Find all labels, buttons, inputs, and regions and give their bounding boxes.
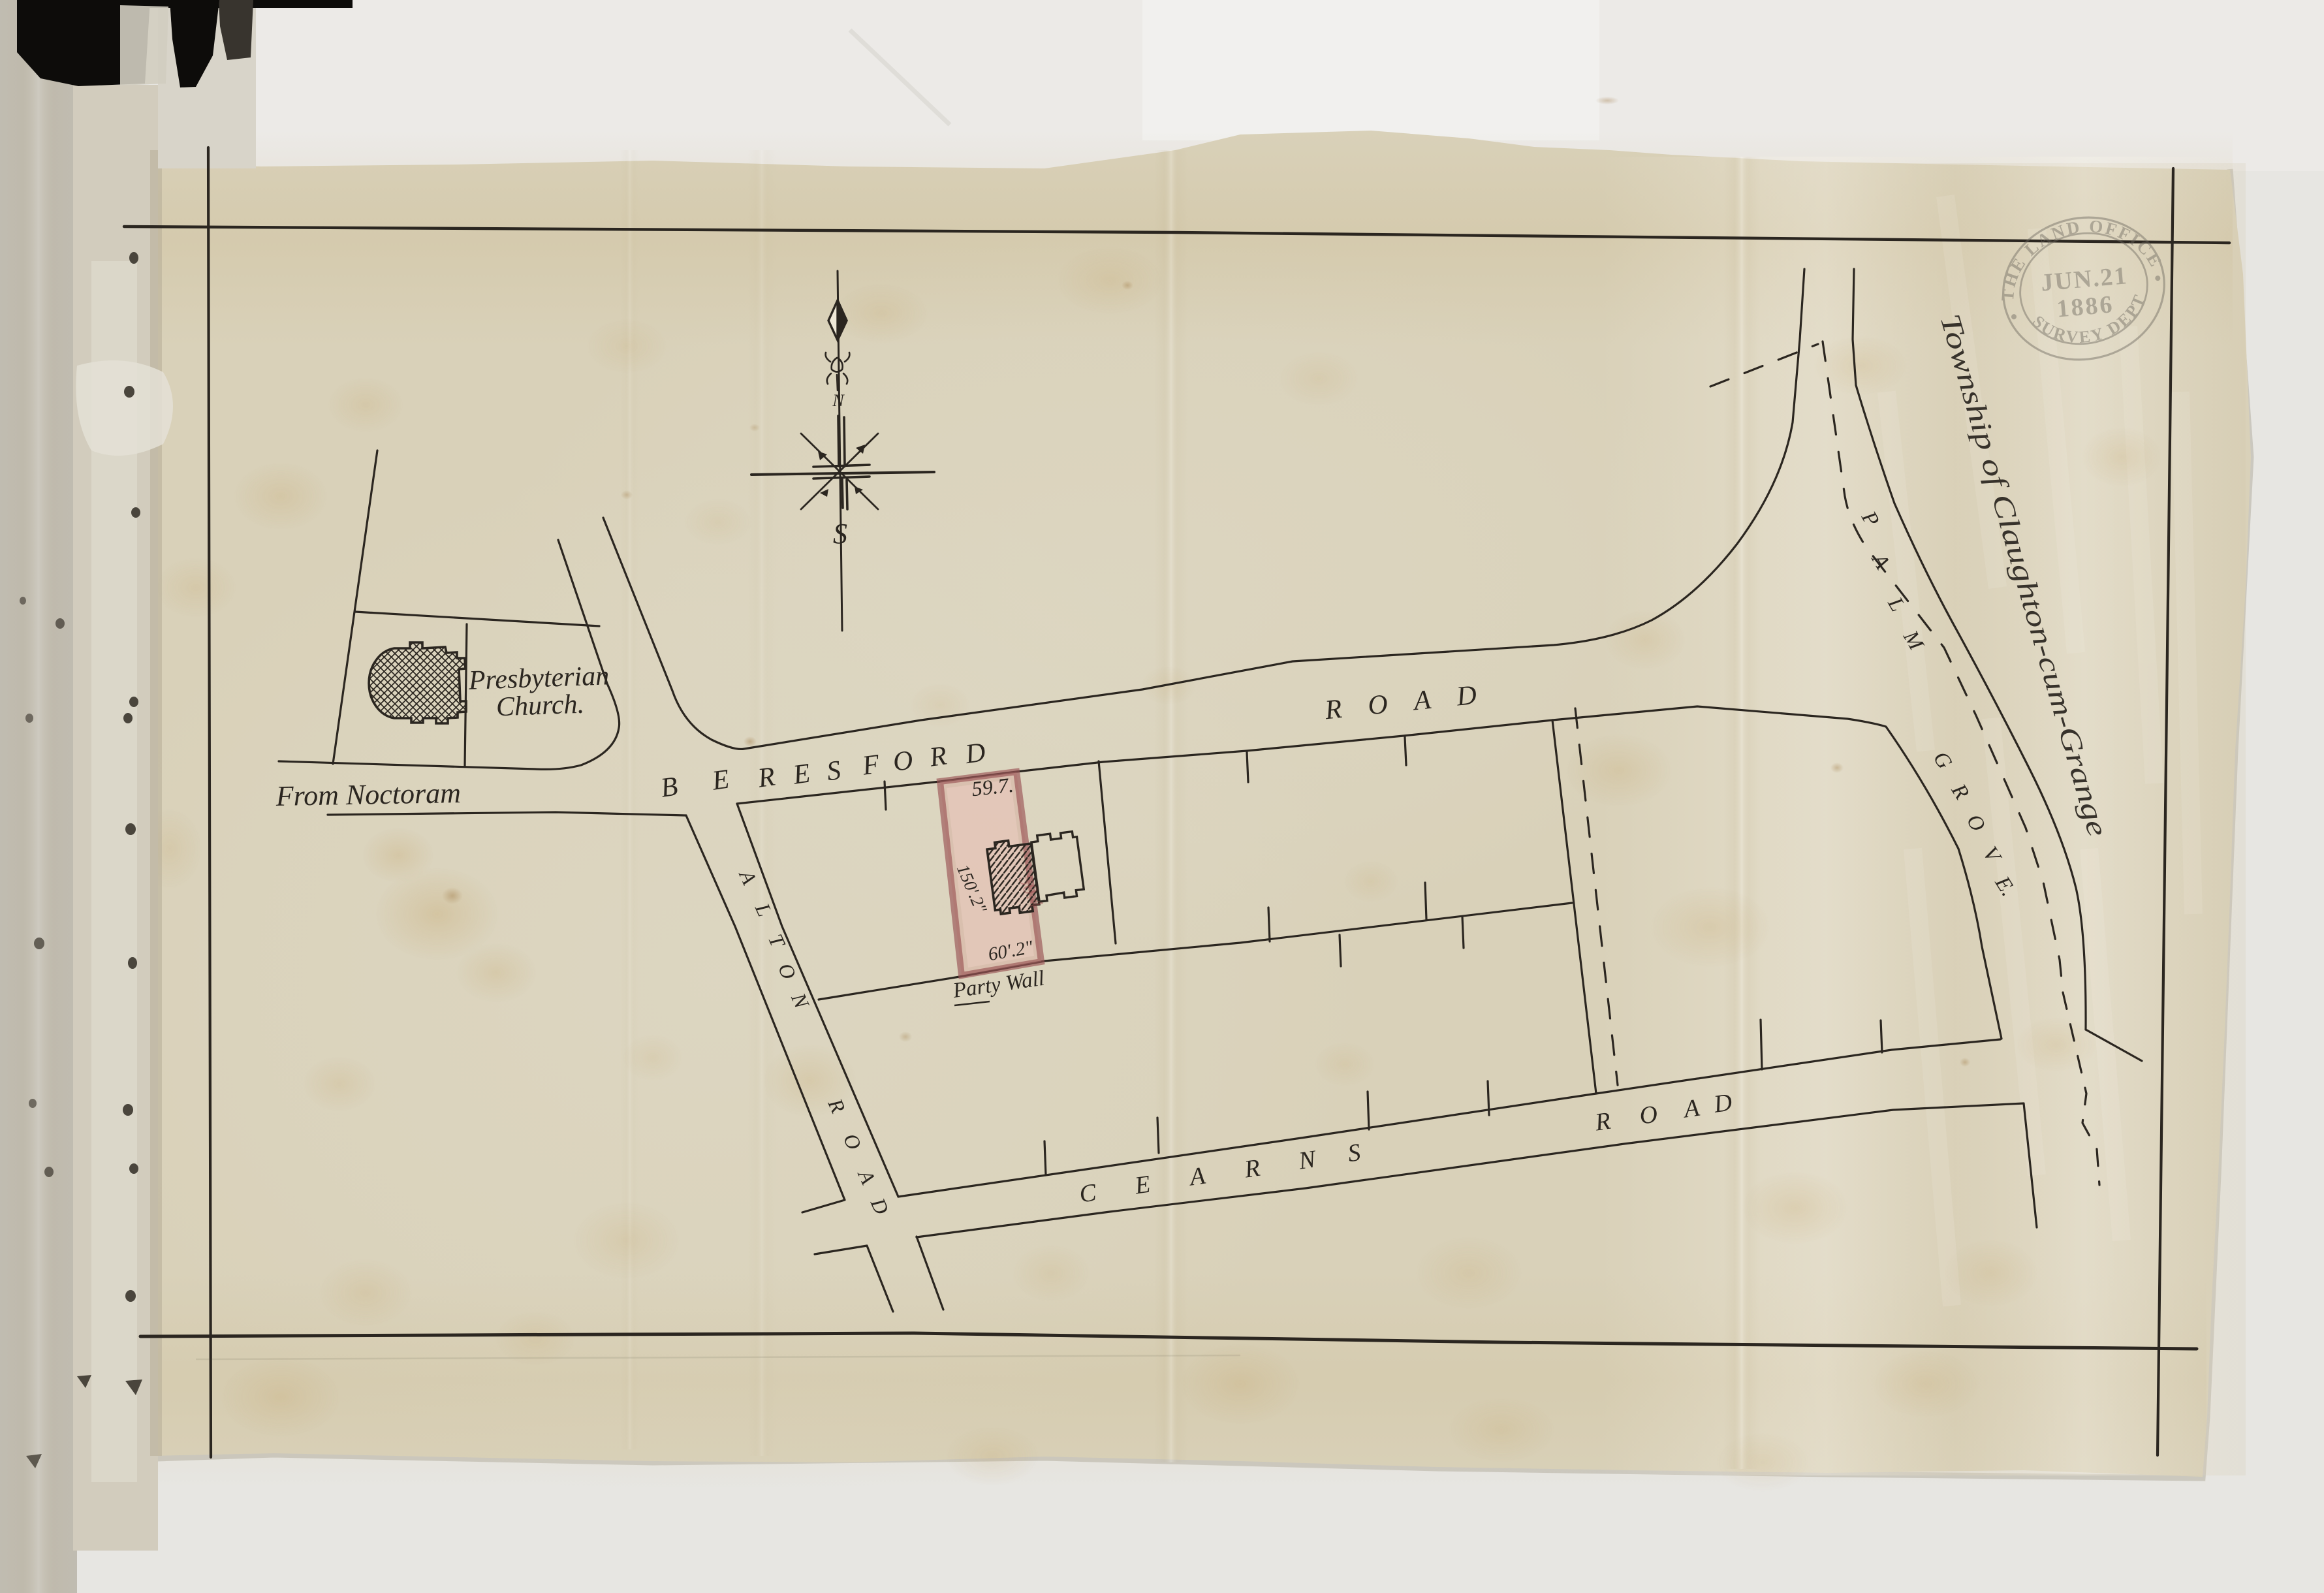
svg-text:R: R: [1323, 694, 1343, 726]
svg-text:S: S: [833, 518, 847, 550]
svg-text:Church.: Church.: [495, 689, 584, 723]
svg-text:D: D: [1454, 680, 1478, 712]
svg-text:O: O: [1638, 1100, 1659, 1129]
svg-text:D: D: [963, 737, 987, 770]
svg-text:O: O: [891, 745, 915, 778]
svg-text:O: O: [1366, 689, 1389, 721]
svg-text:N: N: [832, 391, 845, 410]
svg-text:59.7.: 59.7.: [971, 773, 1014, 800]
svg-text:From Noctoram: From Noctoram: [275, 777, 461, 812]
svg-text:D: D: [1712, 1088, 1734, 1118]
svg-text:1886: 1886: [2056, 291, 2115, 323]
